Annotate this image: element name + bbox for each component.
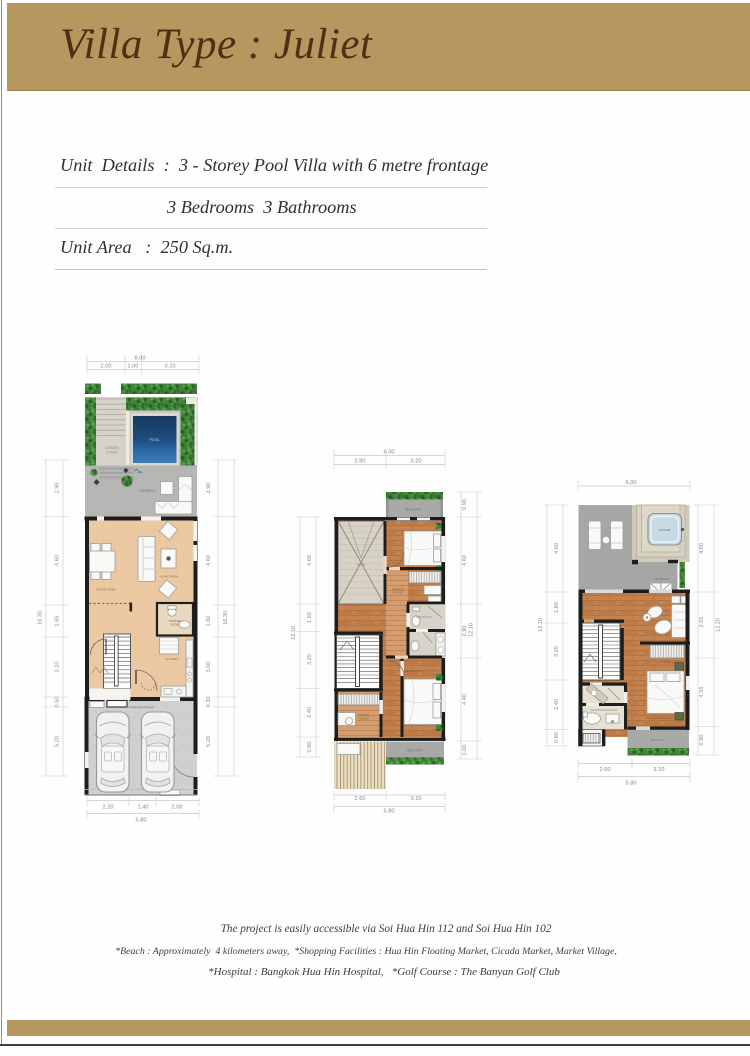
svg-text:1.65: 1.65 (307, 612, 313, 623)
svg-text:6.00: 6.00 (626, 480, 637, 486)
svg-text:3.10: 3.10 (411, 796, 422, 802)
svg-text:3.25: 3.25 (307, 654, 313, 665)
svg-text:12.20: 12.20 (716, 618, 722, 632)
svg-text:BALCONY: BALCONY (406, 508, 423, 512)
svg-text:MASTER BEDROOM: MASTER BEDROOM (647, 716, 675, 720)
svg-text:2.90: 2.90 (55, 483, 61, 494)
svg-text:2.60: 2.60 (355, 796, 366, 802)
svg-text:6.00: 6.00 (384, 450, 395, 456)
svg-text:4.60: 4.60 (554, 543, 560, 554)
svg-text:1.00: 1.00 (128, 364, 139, 370)
svg-text:PARKING AREA: PARKING AREA (129, 706, 155, 710)
svg-text:DINING AREA: DINING AREA (96, 588, 115, 592)
svg-text:16.30: 16.30 (38, 611, 44, 625)
svg-text:4.60: 4.60 (55, 555, 61, 566)
svg-text:4.60: 4.60 (307, 555, 313, 566)
svg-text:2.80: 2.80 (355, 459, 366, 465)
svg-text:2.40: 2.40 (307, 707, 313, 718)
svg-text:0.90: 0.90 (699, 735, 705, 746)
svg-text:GARDEN: GARDEN (105, 446, 119, 450)
svg-text:KITCHEN: KITCHEN (165, 657, 178, 661)
svg-text:5.20: 5.20 (206, 736, 212, 747)
svg-text:2.00: 2.00 (101, 364, 112, 370)
svg-text:2.00: 2.00 (172, 805, 183, 811)
svg-text:16.30: 16.30 (223, 611, 229, 625)
svg-text:4.40: 4.40 (462, 694, 468, 705)
svg-text:3.00: 3.00 (206, 662, 212, 673)
svg-text:1.65: 1.65 (55, 616, 61, 627)
svg-text:CLOSET: CLOSET (661, 660, 672, 664)
svg-text:3.10: 3.10 (165, 364, 176, 370)
svg-text:1.60: 1.60 (554, 602, 560, 613)
svg-text:0.60: 0.60 (307, 742, 313, 753)
svg-text:0.30: 0.30 (206, 697, 212, 708)
svg-text:2.90: 2.90 (462, 626, 468, 637)
svg-text:5.20: 5.20 (55, 736, 61, 747)
svg-text:5.80: 5.80 (626, 781, 637, 787)
svg-text:POOL: POOL (150, 438, 160, 442)
svg-text:4.60: 4.60 (462, 555, 468, 566)
svg-text:4.60: 4.60 (206, 555, 212, 566)
svg-text:2.60: 2.60 (600, 767, 611, 773)
svg-text:12.10: 12.10 (538, 618, 544, 632)
svg-text:1.40: 1.40 (138, 805, 149, 811)
svg-text:6.00: 6.00 (135, 356, 146, 362)
svg-text:CLOSET: CLOSET (359, 717, 370, 721)
svg-text:MASTER BATHROOM: MASTER BATHROOM (591, 708, 617, 712)
svg-text:5.80: 5.80 (384, 809, 395, 815)
svg-text:BALCONY: BALCONY (407, 749, 423, 753)
svg-text:5.80: 5.80 (136, 818, 147, 824)
svg-text:3.10: 3.10 (654, 767, 665, 773)
svg-text:3.20: 3.20 (411, 459, 422, 465)
svg-text:BATHROOM: BATHROOM (417, 615, 432, 619)
svg-text:WALK IN: WALK IN (359, 713, 370, 717)
svg-text:CLOSET: CLOSET (393, 591, 404, 595)
svg-text:ROOM: ROOM (171, 623, 180, 627)
svg-text:2.65: 2.65 (699, 617, 705, 628)
svg-text:STAIRS: STAIRS (106, 451, 117, 455)
svg-text:LIVING AREA: LIVING AREA (160, 575, 179, 579)
svg-text:2.40: 2.40 (554, 699, 560, 710)
svg-text:3.10: 3.10 (55, 662, 61, 673)
svg-text:VOID: VOID (356, 563, 366, 567)
svg-text:3.25: 3.25 (554, 646, 560, 657)
svg-text:4.55: 4.55 (699, 687, 705, 698)
svg-text:2.20: 2.20 (103, 805, 114, 811)
svg-text:12.10: 12.10 (291, 626, 297, 640)
svg-text:BEDROOM 1: BEDROOM 1 (405, 669, 423, 673)
svg-text:1.60: 1.60 (206, 616, 212, 627)
svg-text:WALK IN: WALK IN (393, 587, 404, 591)
svg-text:1.00: 1.00 (462, 745, 468, 756)
svg-text:JACUZZI: JACUZZI (659, 528, 671, 532)
svg-text:2.90: 2.90 (206, 483, 212, 494)
svg-text:0.90: 0.90 (462, 499, 468, 510)
svg-text:12.10: 12.10 (469, 623, 475, 637)
svg-text:BALCONY: BALCONY (651, 738, 665, 742)
svg-text:0.50: 0.50 (55, 697, 61, 708)
svg-text:4.60: 4.60 (699, 543, 705, 554)
svg-text:0.60: 0.60 (554, 732, 560, 743)
svg-text:TERRACE: TERRACE (139, 489, 156, 493)
svg-text:TERRACE: TERRACE (654, 577, 668, 581)
